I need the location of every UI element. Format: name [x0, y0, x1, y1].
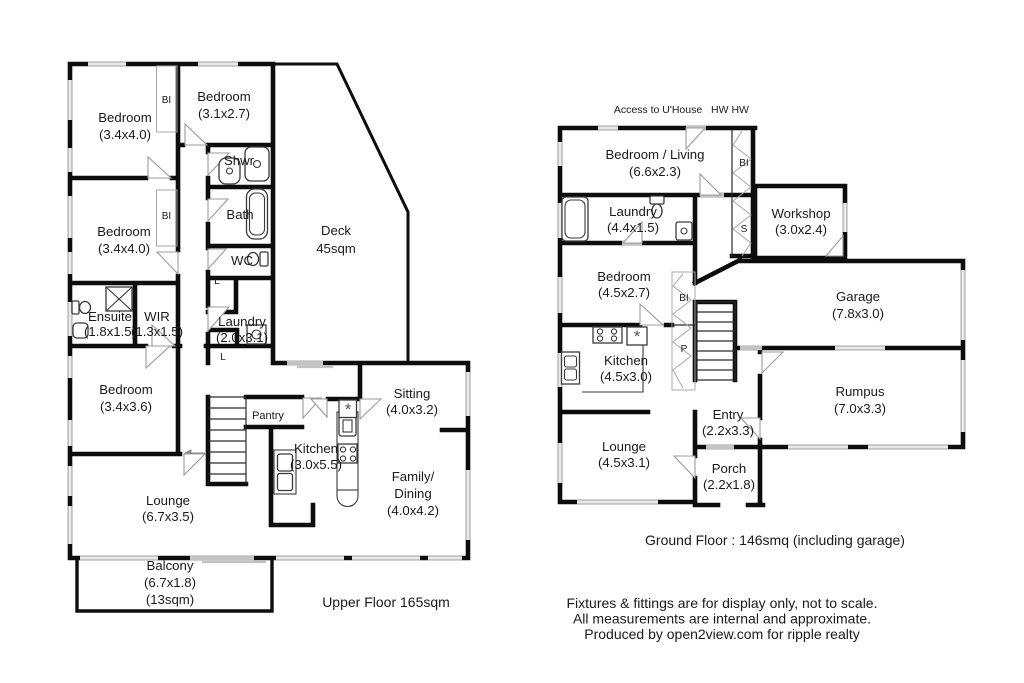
room-label-sitting: Sitting — [394, 386, 431, 401]
ground-heater-icon: * — [634, 327, 641, 346]
ground-stove-icon — [593, 327, 622, 343]
room-label-bath: Bath — [226, 207, 253, 222]
room-size-wir: (1.3x1.5) — [131, 324, 183, 339]
wc-toilet-icon — [260, 252, 268, 266]
room-size-lounge: (6.7x3.5) — [142, 509, 194, 524]
label-linen2: L — [220, 352, 226, 363]
room-size-ensuite: (1.8x1.5) — [84, 324, 136, 339]
ground-floor-plan: * Access to U'House HW HW Bedroom / Livi… — [560, 104, 963, 548]
room-size-entry: (2.2x3.3) — [702, 423, 754, 438]
deck-outline — [273, 64, 408, 363]
room-size-porch: (2.2x1.8) — [703, 477, 755, 492]
upper-floor-plan: * Bedroom (3.4x4.0) BI Bedroom (3.1x2.7)… — [70, 64, 468, 611]
room-label-wir: WIR — [144, 309, 170, 324]
room-label-ground-laundry: Laundry — [609, 204, 657, 219]
room-label-ground-lounge: Lounge — [602, 439, 646, 454]
label-ground-bi2: BI — [679, 293, 688, 304]
room-size-bedroom3: (3.4x4.0) — [98, 241, 150, 256]
room-label-workshop: Workshop — [771, 206, 830, 221]
room-size-rumpus: (7.0x3.3) — [834, 401, 886, 416]
room-size-family: (4.0x4.2) — [387, 503, 439, 518]
label-bi1: BI — [162, 95, 171, 106]
room-label-wc: WC — [231, 253, 253, 268]
room-size-garage: (7.8x3.0) — [832, 306, 884, 321]
ground-floor-caption: Ground Floor : 146smq (including garage) — [645, 532, 905, 548]
room-label-bedroom4: Bedroom — [99, 382, 153, 397]
room-label-balcony: Balcony — [147, 558, 194, 573]
room-size-deck: 45sqm — [316, 241, 356, 256]
room-label-bedroom2: Bedroom — [197, 89, 251, 104]
heater-icon: * — [345, 400, 352, 419]
upper-stairs-icon — [185, 397, 246, 484]
room-label-porch: Porch — [712, 461, 746, 476]
ground-stairs-icon — [697, 302, 735, 380]
floor-plan-page: * Bedroom (3.4x4.0) BI Bedroom (3.1x2.7)… — [0, 0, 1024, 683]
label-ground-bi1: BI — [739, 158, 748, 169]
room-size-ground-bedroom: (4.5x2.7) — [598, 285, 650, 300]
room-label-rumpus: Rumpus — [835, 384, 885, 399]
room-label-garage: Garage — [836, 289, 880, 304]
room-label-kitchen: Kitchen — [294, 441, 338, 456]
room-label-lounge: Lounge — [146, 493, 190, 508]
room-size-balcony: (6.7x1.8) — [144, 575, 196, 590]
room-size-laundry: (2.0x3.1) — [216, 330, 268, 345]
room-size-workshop: (3.0x2.4) — [775, 222, 827, 237]
footer-disclaimer: Fixtures & fittings are for display only… — [567, 595, 878, 642]
room-label-laundry: Laundry — [218, 314, 266, 329]
room-label-bedroom-living: Bedroom / Living — [606, 147, 705, 162]
room-area-balcony: (13sqm) — [146, 592, 194, 607]
room-label-deck: Deck — [321, 223, 351, 238]
label-storage: S — [741, 224, 748, 235]
hw-note: HW HW — [711, 104, 749, 116]
room-size-ground-kitchen: (4.5x3.0) — [600, 369, 652, 384]
room-size-bedroom4: (3.4x3.6) — [100, 399, 152, 414]
label-linen1: L — [214, 276, 220, 287]
access-note: Access to U'House — [614, 104, 703, 116]
room-size-ground-lounge: (4.5x3.1) — [598, 455, 650, 470]
room-size-kitchen: (3.0x5.5) — [290, 457, 342, 472]
oven-icon — [339, 416, 356, 436]
upper-floor-caption: Upper Floor 165sqm — [322, 594, 450, 610]
room-size-bedroom-living: (6.6x2.3) — [629, 164, 681, 179]
ensuite-toilet-icon — [72, 301, 79, 314]
label-bi2: BI — [162, 211, 171, 222]
label-pantry-p: P — [681, 344, 688, 355]
room-label-ground-bedroom: Bedroom — [597, 269, 651, 284]
room-size-bedroom1: (3.4x4.0) — [99, 127, 151, 142]
room-label-entry: Entry — [713, 407, 744, 422]
ground-laundry-sink-icon — [676, 222, 692, 240]
footer-line2: All measurements are internal and approx… — [573, 611, 871, 627]
room-size-sitting: (4.0x3.2) — [386, 402, 438, 417]
room-label-bedroom3: Bedroom — [97, 224, 151, 239]
footer-line3: Produced by open2view.com for ripple rea… — [584, 626, 859, 642]
room-label-family2: Dining — [394, 486, 431, 501]
ground-toilet-icon — [650, 196, 664, 204]
footer-line1: Fixtures & fittings are for display only… — [567, 595, 878, 611]
room-label-ensuite: Ensuite — [88, 309, 132, 324]
room-size-bedroom2: (3.1x2.7) — [198, 106, 250, 121]
room-size-ground-laundry: (4.4x1.5) — [607, 220, 659, 235]
floor-plan-svg: * Bedroom (3.4x4.0) BI Bedroom (3.1x2.7)… — [0, 0, 1024, 683]
room-label-ground-kitchen: Kitchen — [604, 353, 648, 368]
room-label-family: Family/ — [392, 469, 435, 484]
room-label-pantry: Pantry — [252, 410, 284, 422]
room-label-bedroom1: Bedroom — [98, 110, 152, 125]
room-label-shower: Shwr — [224, 153, 255, 168]
